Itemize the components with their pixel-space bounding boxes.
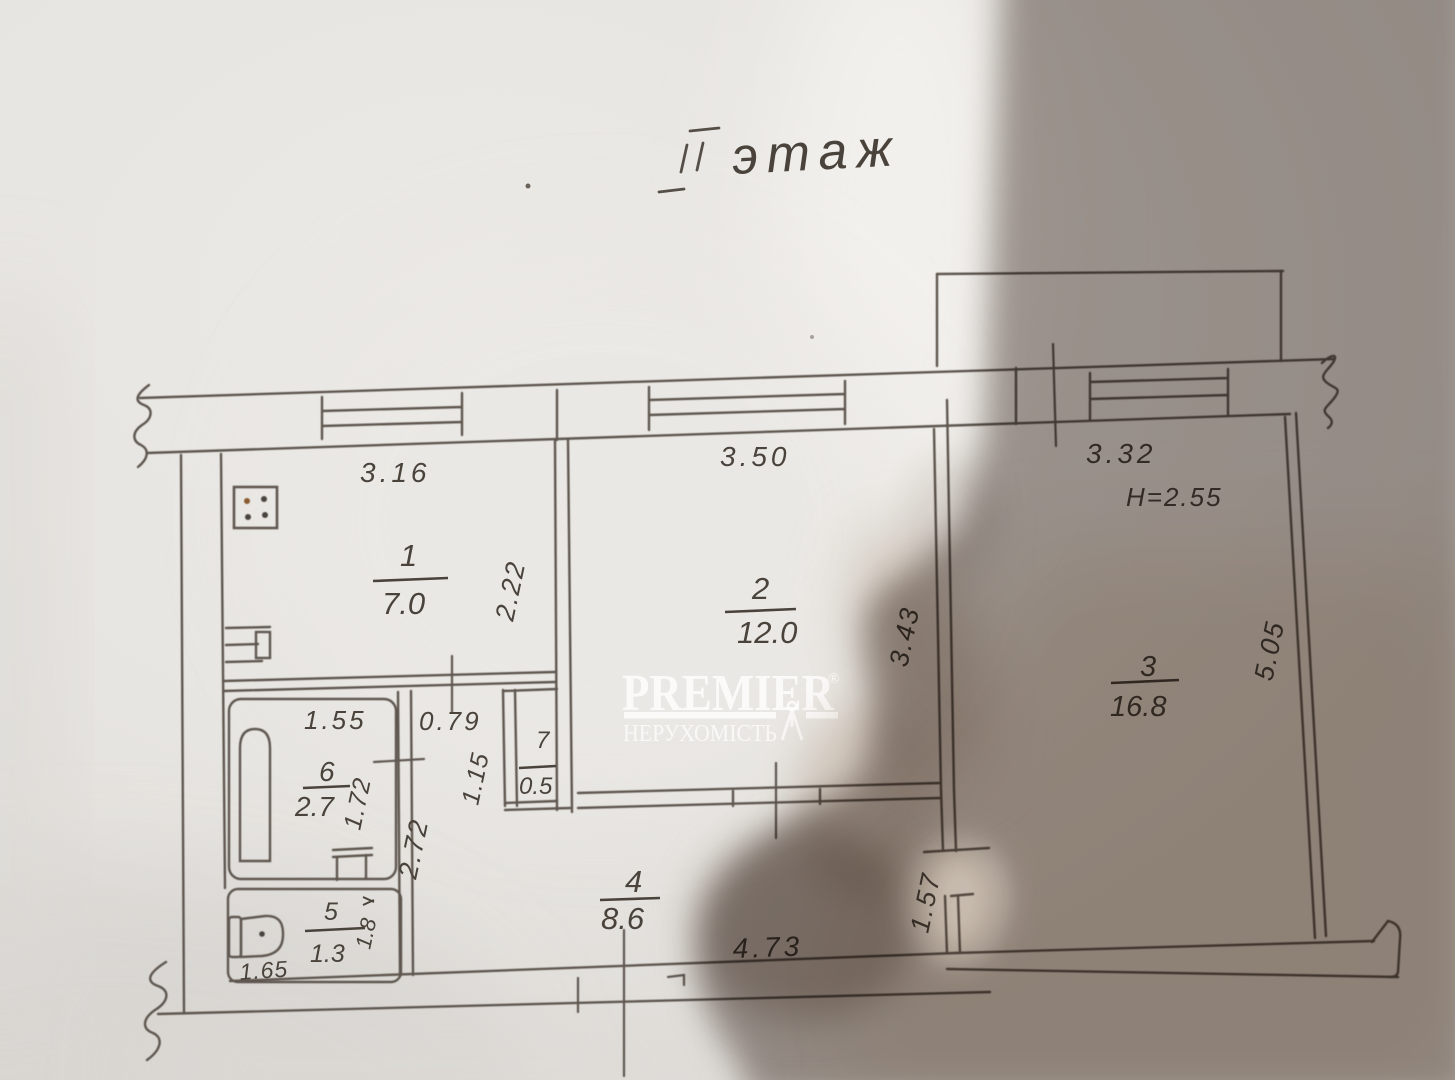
svg-text:6: 6 xyxy=(319,756,335,787)
svg-text:4: 4 xyxy=(625,864,642,899)
svg-text:1.65: 1.65 xyxy=(239,956,289,985)
svg-text:®: ® xyxy=(828,671,839,687)
svg-text:1.3: 1.3 xyxy=(310,940,345,968)
svg-text:7.0: 7.0 xyxy=(382,586,425,621)
svg-text:этаж: этаж xyxy=(731,119,903,186)
svg-text:НЕРУХОМІСТЬ: НЕРУХОМІСТЬ xyxy=(623,721,777,747)
svg-text:3.16: 3.16 xyxy=(360,457,431,488)
svg-text:7: 7 xyxy=(536,727,551,754)
svg-text:2.7: 2.7 xyxy=(294,791,335,822)
svg-text:0.79: 0.79 xyxy=(419,706,482,736)
svg-text:2: 2 xyxy=(751,571,769,606)
svg-text:1: 1 xyxy=(400,538,417,573)
svg-text:1.55: 1.55 xyxy=(304,705,367,735)
svg-text:8.6: 8.6 xyxy=(601,901,645,936)
svg-text:3.50: 3.50 xyxy=(720,441,791,472)
svg-text:12.0: 12.0 xyxy=(737,615,797,650)
svg-text:5: 5 xyxy=(324,898,338,926)
svg-text:0.5: 0.5 xyxy=(519,773,553,800)
